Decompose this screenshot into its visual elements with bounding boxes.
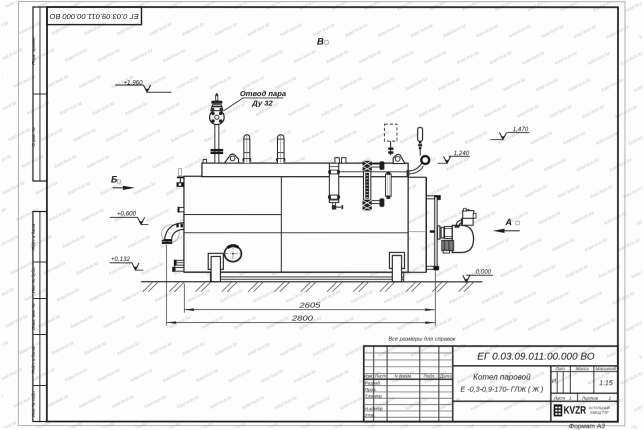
svg-text:0,000: 0,000 [476, 269, 492, 276]
svg-text:Отвод пара: Отвод пара [240, 89, 286, 98]
svg-text:ЕГ 0.03.09.011.00.000 ВО: ЕГ 0.03.09.011.00.000 ВО [477, 352, 595, 363]
svg-text:Взам. инв. №: Взам. инв. № [31, 303, 36, 330]
svg-text:2605: 2605 [298, 303, 320, 310]
svg-text:Ду 32: Ду 32 [251, 99, 273, 108]
svg-text:ЕГ 0.03.09.011.00.000 ВО: ЕГ 0.03.09.011.00.000 ВО [50, 12, 139, 21]
svg-text:Подп.: Подп. [424, 374, 436, 379]
svg-text:2: 2 [608, 396, 612, 401]
svg-text:Утв.: Утв. [365, 413, 375, 418]
svg-text:Изм.: Изм. [364, 374, 373, 379]
svg-text:Все размеры для справок: Все размеры для справок [388, 337, 455, 343]
svg-text:Лист: Лист [374, 374, 387, 379]
svg-text:Перв. примен.: Перв. примен. [31, 36, 36, 65]
svg-text:Справ. №: Справ. № [31, 127, 36, 147]
svg-text:Разраб.: Разраб. [365, 381, 382, 386]
svg-text:Е -0,3-0,9-170- ГЛЖ ( Ж ): Е -0,3-0,9-170- ГЛЖ ( Ж ) [460, 385, 543, 394]
svg-text:Т.контр: Т.контр [365, 394, 383, 399]
svg-text:Лит.: Лит. [555, 366, 566, 371]
svg-text:1:15: 1:15 [599, 380, 613, 387]
svg-text:Дата: Дата [439, 374, 452, 379]
svg-text:+0,600: +0,600 [117, 211, 137, 218]
svg-text:Подп. и дата: Подп. и дата [31, 223, 36, 251]
svg-text:Подп. и дата: Подп. и дата [31, 346, 36, 374]
svg-text:Котел паровой: Котел паровой [473, 373, 531, 382]
svg-text:Масса: Масса [576, 366, 590, 371]
svg-text:Инв. № подл.: Инв. № подл. [31, 390, 36, 417]
svg-text:2800: 2800 [291, 315, 313, 322]
svg-text:Лист: Лист [553, 396, 566, 401]
svg-text:N докум.: N докум. [394, 374, 412, 379]
svg-text:+0,132: +0,132 [111, 256, 131, 263]
svg-text:В: В [317, 37, 324, 48]
svg-text:Н.контр: Н.контр [365, 406, 384, 411]
svg-text:ЗАВОД РЗР: ЗАВОД РЗР [590, 411, 609, 415]
svg-text:Формат А3: Формат А3 [569, 423, 605, 430]
svg-text:Инв. № дубл.: Инв. № дубл. [31, 267, 36, 293]
svg-text:Масштаб: Масштаб [596, 366, 617, 371]
svg-text:Листов: Листов [581, 396, 599, 401]
svg-text:КОТЕЛЬНЫЙ: КОТЕЛЬНЫЙ [589, 406, 610, 410]
svg-text:А: А [504, 217, 512, 227]
svg-text:KVZR: KVZR [564, 405, 587, 417]
svg-text:Пров.: Пров. [365, 387, 377, 392]
